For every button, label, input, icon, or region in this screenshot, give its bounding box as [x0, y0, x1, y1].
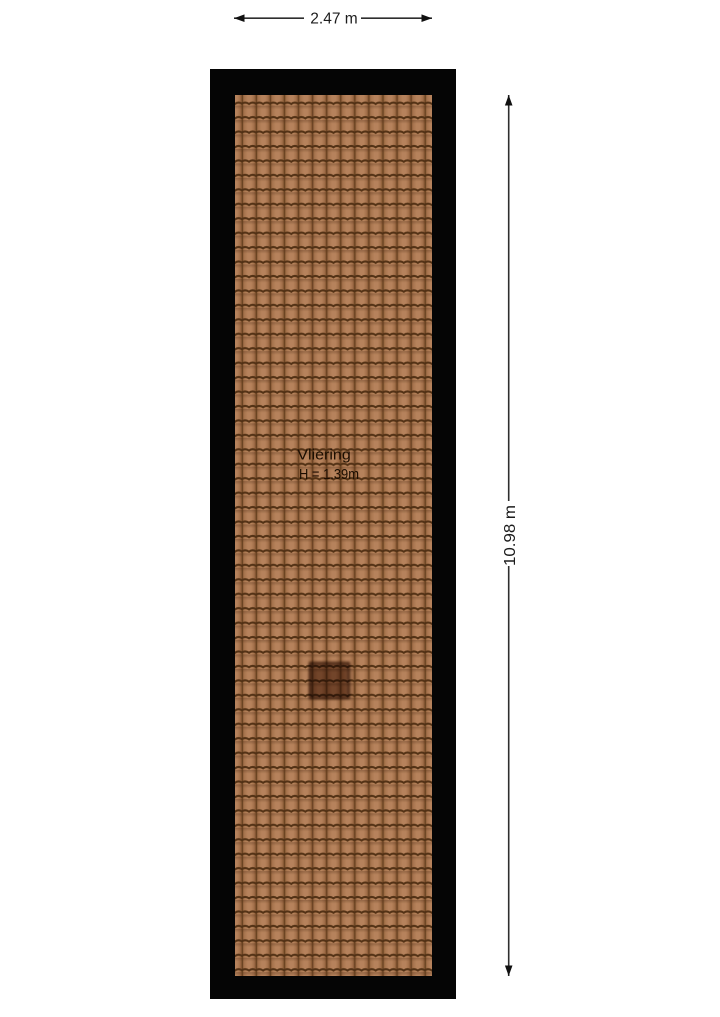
svg-text:H = 1.39m: H = 1.39m	[299, 466, 359, 483]
svg-text:Vliering: Vliering	[297, 447, 351, 464]
svg-text:10.98 m: 10.98 m	[502, 505, 519, 566]
svg-text:2.47 m: 2.47 m	[310, 11, 357, 28]
